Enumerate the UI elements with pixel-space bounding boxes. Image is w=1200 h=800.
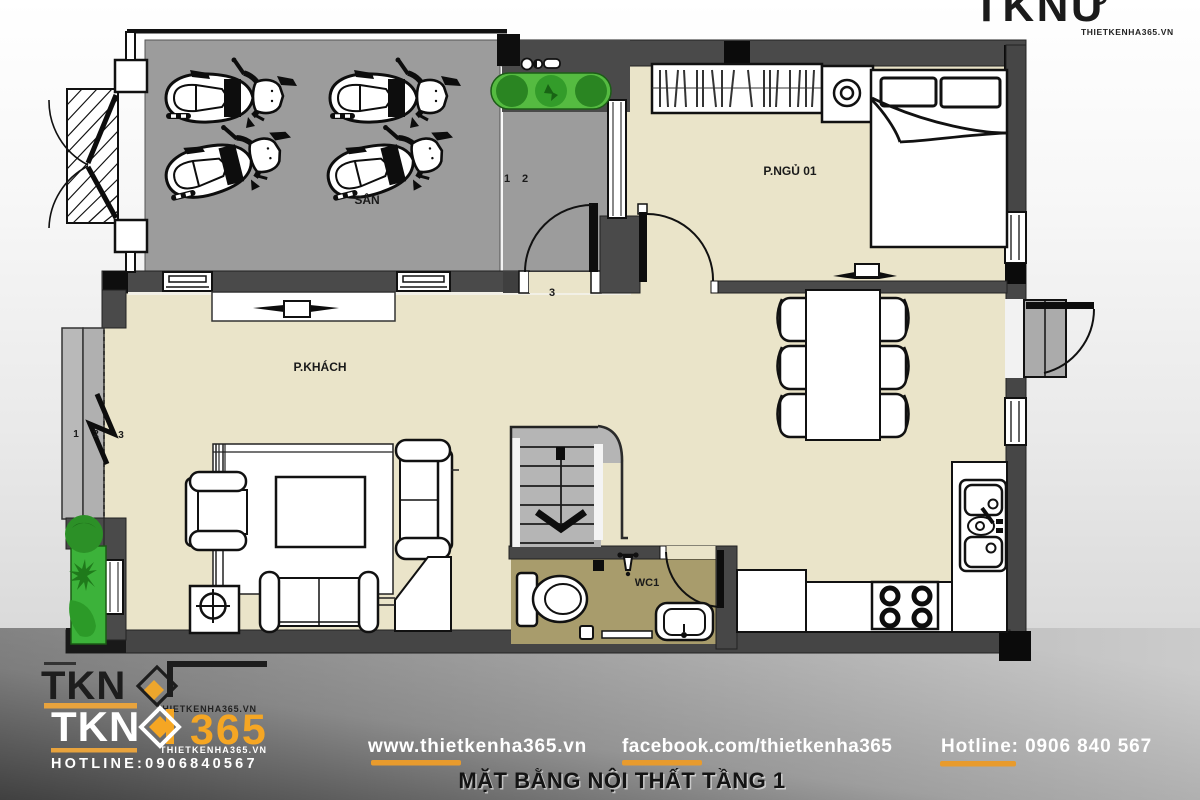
svg-text:2: 2	[522, 173, 528, 185]
svg-text:TKN: TKN	[41, 664, 126, 708]
svg-text:TKN: TKN	[51, 703, 140, 750]
svg-text:P.NGỦ 01: P.NGỦ 01	[763, 163, 816, 178]
svg-text:1: 1	[73, 429, 79, 440]
svg-text:facebook.com/thietkenha365: facebook.com/thietkenha365	[622, 736, 892, 757]
svg-text:2: 2	[93, 429, 99, 440]
svg-text:MẶT BẰNG NỘI THẤT TẦNG 1: MẶT BẰNG NỘI THẤT TẦNG 1	[458, 768, 785, 793]
svg-text:P.KHÁCH: P.KHÁCH	[293, 359, 346, 374]
svg-text:WC1: WC1	[635, 577, 659, 589]
svg-text:1: 1	[504, 173, 510, 185]
svg-text:THIETKENHA365.VN: THIETKENHA365.VN	[1081, 27, 1174, 37]
svg-text:HOTLINE:0906840567: HOTLINE:0906840567	[51, 756, 258, 772]
svg-text:Hotline: 0906 840 567: Hotline: 0906 840 567	[941, 736, 1152, 757]
svg-text:SÂN: SÂN	[354, 192, 379, 207]
svg-text:THIETKENHA365.VN: THIETKENHA365.VN	[160, 745, 267, 755]
svg-text:3: 3	[118, 430, 124, 441]
svg-text:www.thietkenha365.vn: www.thietkenha365.vn	[367, 736, 587, 757]
svg-text:3: 3	[549, 287, 555, 299]
